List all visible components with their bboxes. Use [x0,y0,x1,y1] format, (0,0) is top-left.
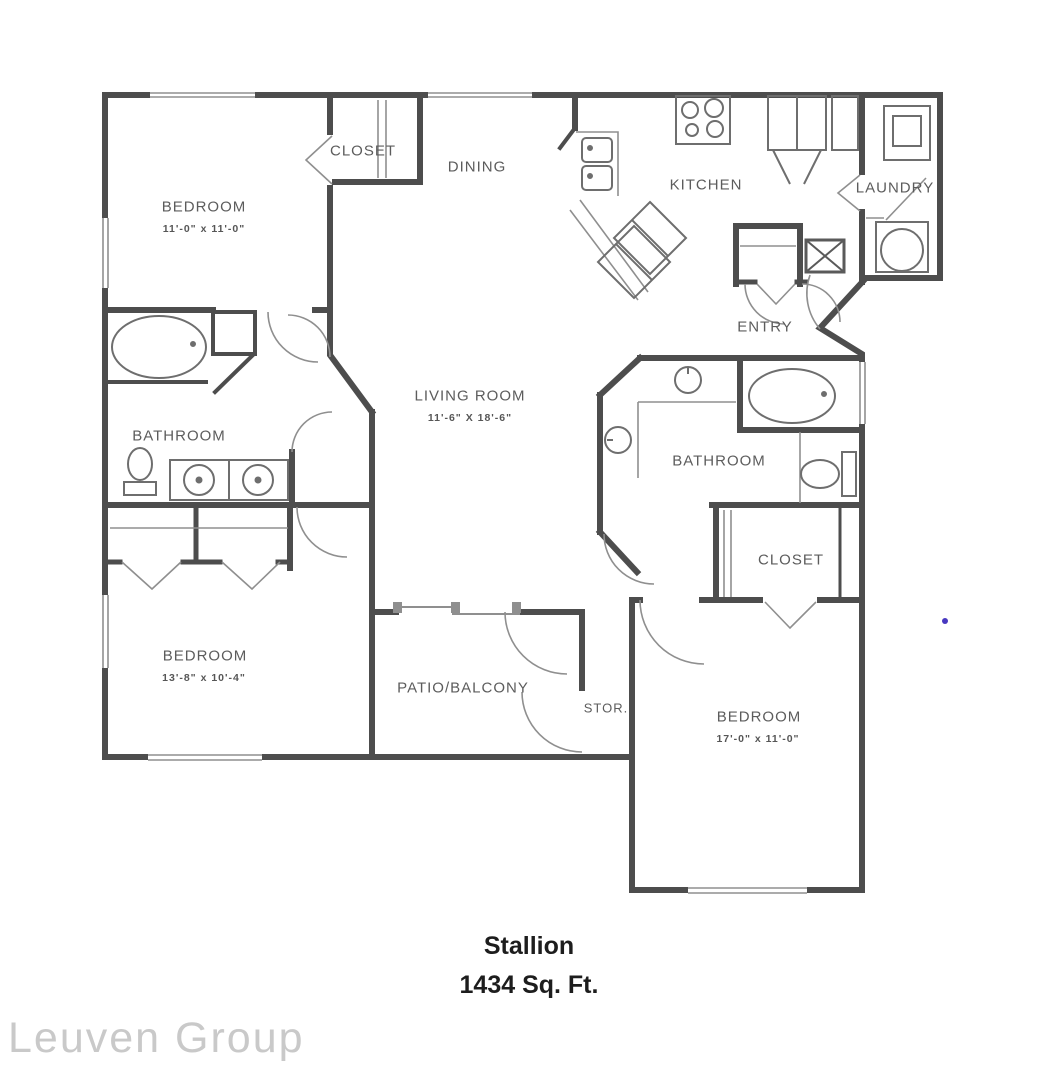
room-label-laundry: LAUNDRY [856,180,934,197]
room-label-patio-balcony: PATIO/BALCONY [397,680,529,697]
room-label-closet-1: CLOSET [330,143,396,160]
bathtub-1-icon [112,316,206,378]
kitchen-sink-icon [582,138,612,190]
closet1-bifold-icon [306,136,332,184]
room-label-bedroom-2: BEDROOM [163,648,248,665]
utility-box-icon [806,240,844,272]
pantry-cabinet-icon [832,96,858,150]
room-dims-bedroom-2: 13'-8" x 10'-4" [162,672,246,684]
room-label-dining: DINING [448,159,507,176]
plan-title: Stallion [0,932,1058,961]
entry-closet-bifold-icon [757,284,795,304]
room-label-bathroom-1: BATHROOM [132,428,226,445]
dryer-icon [876,222,928,272]
vanity-1-icon [170,460,288,500]
closet-left-bifold-icon [122,562,181,589]
watermark-leuven-group: Leuven Group [8,1014,305,1063]
scan-dot [942,618,948,624]
sliding-door-icon [394,603,520,614]
room-label-storage: STOR. [584,701,629,716]
room-dims-living-room: 11'-6" X 18'-6" [428,412,512,424]
thin-details [110,100,926,597]
closet-left-bifold-icon2 [222,562,280,589]
toilet-1-icon [124,448,156,495]
floorplan-drawing [0,0,1058,1080]
room-label-kitchen: KITCHEN [670,177,743,194]
room-label-living-room: LIVING ROOM [414,388,525,405]
toilet-2-icon [801,452,856,496]
stove-icon [676,96,730,144]
washer-icon [884,106,930,160]
room-dims-bedroom-3: 17'-0" x 11'-0" [716,733,799,745]
room-label-closet-2: CLOSET [758,552,824,569]
room-label-bedroom-1: BEDROOM [162,199,247,216]
refrigerator-icon [768,96,826,184]
room-dims-bedroom-1: 11'-0" x 11'-0" [163,223,246,235]
room-label-bedroom-3: BEDROOM [717,709,802,726]
closet2-bifold-icon [765,602,816,628]
floorplan-page: BEDROOM 11'-0" x 11'-0" CLOSET DINING KI… [0,0,1058,1080]
room-label-entry: ENTRY [737,319,793,336]
bathtub-2-icon [749,369,835,423]
room-label-bathroom-2: BATHROOM [672,453,766,470]
plan-square-footage: 1434 Sq. Ft. [0,971,1058,1000]
